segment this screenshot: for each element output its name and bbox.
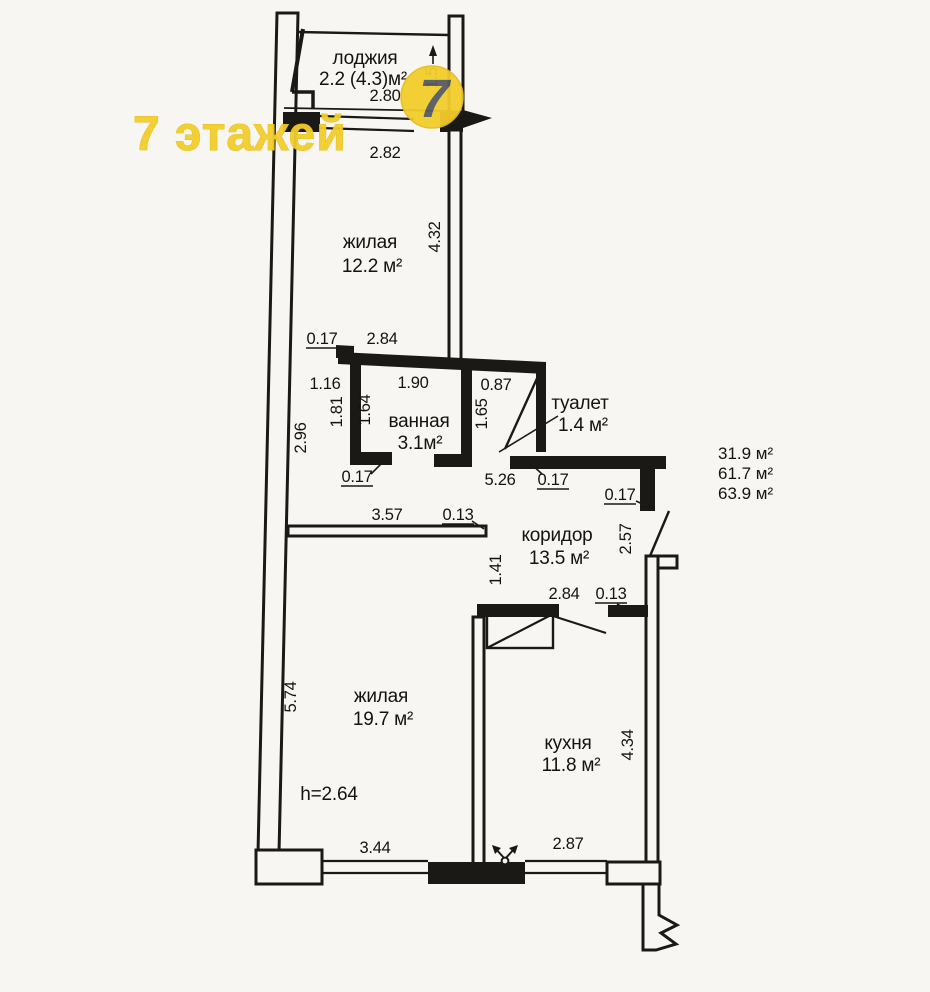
dim-bath-depth: 1.64 <box>356 394 374 425</box>
total-floor-area: 61.7 м² <box>718 464 773 483</box>
dim-kitchen-top-gap: 0.13 <box>596 585 627 603</box>
area-label-corridor: 13.5 м² <box>529 548 589 569</box>
floor-plan-svg: лоджия 2.2 (4.3)м² 2.80 1.5 2.82 жилая 1… <box>0 0 930 992</box>
area-label-kitchen: 11.8 м² <box>542 755 601 776</box>
dim-bath-width: 1.90 <box>398 374 429 392</box>
wall-wet-top <box>338 352 546 374</box>
dim-wet-zone-width: 5.26 <box>485 471 516 489</box>
dim-living1-door-offset: 0.17 <box>307 330 338 348</box>
dim-bath-wall: 0.17 <box>342 468 373 486</box>
watermark-logo: 7 <box>401 66 463 129</box>
wall-bottom-right-pier <box>607 862 660 884</box>
wall-kitchen-top <box>477 604 559 617</box>
dim-wc-width: 0.87 <box>481 376 512 394</box>
ceiling-height-note: h=2.64 <box>300 784 358 805</box>
dim-wc-wall: 0.17 <box>538 471 569 489</box>
wall-kitchen-top-stub <box>608 605 648 617</box>
watermark: 7 этажей 7 <box>133 66 463 161</box>
area-label-toilet: 1.4 м² <box>558 415 608 436</box>
total-living-area: 31.9 м² <box>718 444 773 463</box>
room-label-loggia: лоджия <box>333 48 398 69</box>
wall-corridor-living2 <box>288 526 486 536</box>
wall-living2-kitchen <box>473 617 484 867</box>
dim-wc-depth: 1.65 <box>473 398 491 429</box>
area-label-living1: 12.2 м² <box>342 256 402 277</box>
floor-plan-scan: лоджия 2.2 (4.3)м² 2.80 1.5 2.82 жилая 1… <box>0 0 930 992</box>
watermark-text: 7 этажей <box>133 108 347 161</box>
dim-passage-height: 1.41 <box>487 554 505 585</box>
room-label-living2: жилая <box>354 686 408 707</box>
kitchen-door-swing <box>553 616 606 633</box>
wall-loggia-parapet <box>298 32 449 35</box>
dim-living2-height: 5.74 <box>282 681 300 712</box>
dim-kitchen-height: 4.34 <box>619 729 637 760</box>
wall-bottom-center-pier <box>428 862 525 884</box>
dim-entry-height: 2.57 <box>617 523 635 554</box>
room-label-toilet: туалет <box>551 393 609 414</box>
room-label-corridor: коридор <box>521 525 592 546</box>
dim-corridor-jog: 0.17 <box>605 486 636 504</box>
kitchen-door-diag <box>487 614 553 648</box>
dim-living1-width: 2.84 <box>367 330 398 348</box>
dim-loggia-width-bottom: 2.82 <box>370 144 401 162</box>
wall-bottom-left-pier <box>256 850 322 884</box>
room-label-living1: жилая <box>343 232 397 253</box>
wall-wet-top-step <box>336 345 354 358</box>
area-label-living2: 19.7 м² <box>353 709 413 730</box>
watermark-logo-digit: 7 <box>419 69 452 129</box>
wall-bath-wc-divider <box>461 364 472 454</box>
wc-leader <box>499 416 558 452</box>
dim-corridor-wall: 3.57 <box>372 506 403 524</box>
dim-hall-width: 1.16 <box>310 375 341 393</box>
total-area: 63.9 м² <box>718 484 773 503</box>
wall-living1-right <box>449 130 461 360</box>
dim-living1-height: 4.32 <box>426 221 444 252</box>
dim-arrowhead-loggia-depth <box>429 45 437 56</box>
dim-loggia-width-top: 2.80 <box>370 87 401 105</box>
wall-right-lower <box>646 556 658 876</box>
wall-north-wedge <box>463 110 492 128</box>
dim-hall-height: 2.96 <box>292 422 310 453</box>
area-label-bathroom: 3.1м² <box>398 433 443 454</box>
dim-hall-left-height: 1.81 <box>328 396 346 427</box>
room-label-bathroom: ванная <box>388 411 449 432</box>
dim-kitchen-width: 2.87 <box>553 835 584 853</box>
dim-living2-width: 3.44 <box>360 839 391 857</box>
room-label-kitchen: кухня <box>544 733 591 754</box>
stove-symbol <box>492 845 518 864</box>
dim-kitchen-top-width: 2.84 <box>549 585 580 603</box>
dim-corridor-wall-gap: 0.13 <box>443 506 474 524</box>
entry-door-leaf <box>650 511 669 556</box>
wall-right-extension <box>643 884 677 950</box>
wall-bath-wc-foot <box>434 454 472 467</box>
